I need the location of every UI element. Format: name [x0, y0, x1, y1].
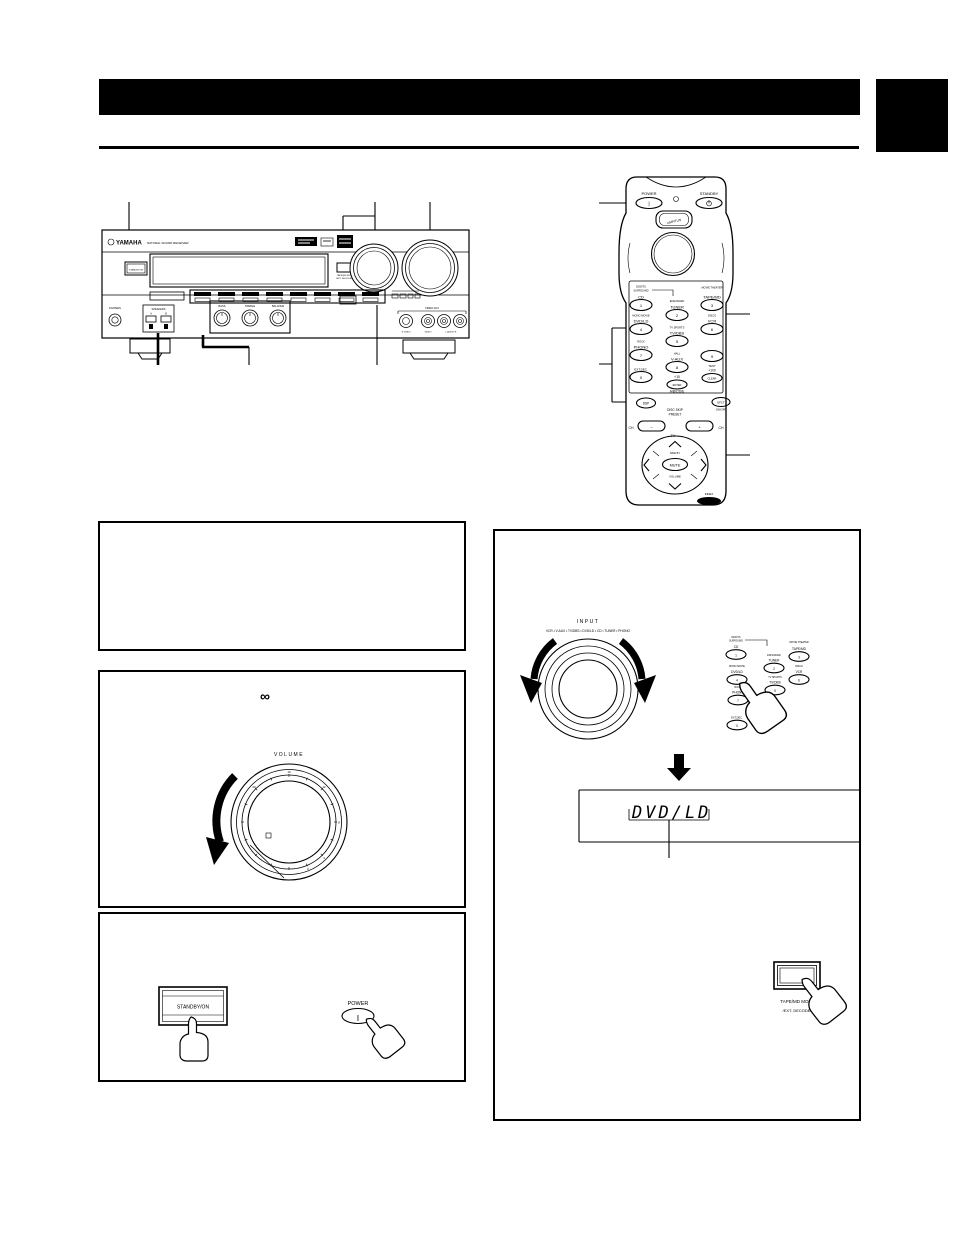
mini-key-tuner-sub1: ENHANCED [767, 654, 781, 657]
mini-key-vcr-num: 6 [798, 679, 800, 683]
front-display-graphic: DVD/LD [579, 790, 859, 858]
dial-tick-20: 20 [252, 785, 256, 789]
section-header-bar [99, 79, 860, 115]
clear-button-label: CLEAR [708, 377, 717, 381]
mini-key-tuner-num: 2 [773, 667, 775, 671]
speakers-label: SPEAKERS [152, 307, 166, 311]
power-symbol: | [648, 202, 649, 208]
video-label: VIDEO [425, 332, 432, 334]
volume-dial-label: VOLUME [274, 752, 304, 758]
mini-key-extdec-num: 0 [736, 724, 738, 728]
key-vaux-label: V-AUX [671, 357, 683, 362]
dial-tick-12: 12 [322, 785, 326, 789]
mini-key-tapemd-sub1: MOVIE THEATER [789, 641, 809, 644]
rotate-right-arrow-icon [621, 641, 656, 703]
standby-on-button-graphic: STANDBY/ON [159, 987, 227, 1061]
dial-tick-8: 8 [338, 821, 340, 825]
onoff-label: ON/OFF [716, 408, 727, 412]
standby-on-graphic-label: STANDBY/ON [177, 1005, 210, 1011]
input-step-box: INPUT VCR • V-AUX • TV/DBS • DVD/LD • CD… [493, 529, 861, 1121]
key-dvdld-label: DVD/LD [634, 319, 649, 324]
ch-left-label: CH [628, 426, 634, 430]
mini-key-vcr-sub1: DISCO [795, 665, 803, 668]
mini-key-dvdld-num: 4 [736, 679, 738, 683]
key-dvdld-sub1: MONO MOVIE [632, 314, 649, 318]
ch-right-label: CH [718, 426, 724, 430]
standby-on-button: STANDBY/ON [125, 262, 147, 275]
tape-mon-graphic-label-2: /EXT. DECODER [783, 1008, 814, 1013]
plus10-label: +10 [674, 375, 680, 379]
balance-label: BALANCE [272, 304, 284, 308]
abcde-label: A/B/C/D/E [670, 390, 685, 394]
key-extdec-label: EXT.DEC. [634, 368, 648, 372]
key-cd-sub1: DD/DTS [636, 285, 646, 289]
mini-key-tuner: ENHANCED TUNER 2 [764, 654, 784, 673]
index-button [697, 497, 721, 505]
volume-dial: 16 12 8 4 0 20 [231, 764, 347, 880]
key-tvdbs-label: TV/DBS [670, 331, 685, 336]
manual-page: YAMAHA NATURAL SOUND RECEIVER STANDBY/ON… [0, 0, 954, 1243]
remote-control-diagram: POWER | STANDBY AMP/TUN DD/DTS SURROUND … [585, 165, 760, 515]
volume-step-graphic: ∞ VOLUME [100, 672, 464, 906]
key-vcr-label: VCR [708, 319, 717, 324]
mini-key-tapemd-num: 3 [798, 656, 800, 660]
plus100-label: +100 [708, 369, 715, 373]
mini-key-phono-num: 7 [737, 699, 739, 703]
mini-key-tapemd-label: TAPE/MD [792, 647, 807, 651]
enter-button-label: ENTER [673, 383, 682, 387]
mini-remote-keypad: DD/DTS SURROUND CD 1 ENHANCED TUNER 2 MO… [726, 636, 809, 736]
input-knob-graphic: INPUT VCR • V-AUX • TV/DBS • DVD/LD • CD… [520, 619, 656, 739]
receiver-front-panel-diagram: YAMAHA NATURAL SOUND RECEIVER STANDBY/ON… [95, 195, 480, 380]
mini-key-cd: DD/DTS SURROUND CD 1 [726, 636, 746, 659]
input-knob: INPUT [350, 244, 398, 292]
mini-key-tvdbs-sub1: TV SPORTS [768, 676, 782, 679]
dial-pointer-mark [266, 833, 271, 838]
power-step-box: STANDBY/ON POWER | [98, 912, 466, 1082]
power-label: POWER [641, 191, 656, 196]
key-vcr-sub1: DISCO [708, 314, 716, 318]
volume-step-box: ∞ VOLUME [98, 670, 466, 908]
audio-lr-label: L AUDIO R [446, 331, 457, 334]
dial-tick-4: 4 [323, 856, 325, 860]
power-button-graphic: POWER | [342, 1001, 407, 1061]
standby-on-label: STANDBY/ON [129, 268, 143, 271]
key-tuner-sub1: ENHANCED [670, 299, 685, 303]
note-box-empty [98, 521, 466, 651]
key-phono-sub1: ROCK [637, 340, 645, 344]
mute-button-label: MUTE [670, 464, 681, 468]
key-cd-label: CD [638, 295, 644, 300]
s-video-label: S VIDEO [402, 332, 411, 334]
mini-key-vcr-label: VCR [796, 670, 803, 674]
tape-mon-label-1: TAPE/MD MON [337, 274, 353, 277]
bass-label: BASS [219, 304, 226, 308]
mini-key-tapemd: MOVIE THEATER TAPE/MD 3 [789, 641, 809, 661]
key-tvdbs-sub1: TV SPORTS [670, 326, 685, 330]
mini-key-dvdld: MONO MOVIE DVD/LD 4 [727, 665, 747, 684]
header-rule [99, 146, 859, 149]
efct-label: EFCT [717, 401, 725, 405]
mini-key-dvdld-sub1: MONO MOVIE [729, 665, 745, 668]
standby-label: STANDBY [700, 191, 719, 196]
brand-text: YAMAHA [116, 241, 142, 247]
test-label: TEST [708, 364, 715, 368]
key-tapemd-label: TAPE/MD [703, 295, 721, 300]
side-by-label: SIDE BY [670, 451, 681, 455]
power-graphic-label: POWER [348, 1001, 369, 1007]
pressing-hand-icon [358, 1009, 407, 1061]
mini-key-dvdld-label: DVD/LD [731, 670, 743, 674]
dsp-label: DSP [643, 402, 650, 406]
receiver-feet [130, 339, 455, 359]
tape-mon-label-2: /EXT. DECODER [336, 278, 353, 280]
index-label: INDEX [705, 492, 714, 496]
power-step-graphic: STANDBY/ON POWER | [100, 914, 464, 1080]
key-cd-sub2: SURROUND [634, 289, 649, 293]
mini-key-vcr: DISCO VCR 6 [789, 665, 809, 684]
power-graphic-symbol: | [357, 1016, 359, 1022]
mini-key-extdec: EXT.DEC. 0 [727, 716, 747, 730]
mini-key-cd-sub2: SURROUND [729, 640, 743, 643]
video-aux-label: VIDEO AUX [425, 306, 439, 310]
input-graphic-label: INPUT [577, 619, 600, 625]
key-tapemd-sub1: MOVIE THEATER [702, 286, 723, 290]
surround-pointer-line [745, 640, 767, 646]
dial-tick-16: 16 [287, 770, 291, 774]
preset-label: PRESET [669, 413, 682, 417]
page-edge-tab [876, 79, 948, 152]
infinity-symbol: ∞ [260, 688, 270, 704]
input-step-graphic: INPUT VCR • V-AUX • TV/DBS • DVD/LD • CD… [495, 531, 859, 1119]
mini-key-cd-label: CD [734, 645, 739, 649]
key-phono-label: PHONO [634, 345, 649, 350]
mini-key-tuner-label: TUNER [769, 659, 781, 663]
disc-skip-label: DISC SKIP [667, 408, 683, 412]
rotate-left-arrow-icon [520, 641, 555, 703]
key-tuner-label: TUNER [670, 305, 684, 310]
input-sources-label: VCR • V-AUX • TV/DBS • DVD/LD • CD • TUN… [546, 629, 630, 633]
down-arrow-icon [667, 754, 691, 781]
treble-label: TREBLE [245, 304, 255, 308]
volume-knob: VOLUME [402, 240, 458, 296]
mini-key-extdec-label: EXT.DEC. [731, 716, 743, 720]
mini-key-tvdbs-label: TV/DBS [769, 681, 781, 685]
tape-mon-button-graphic: TAPE/MD MON /EXT. DECODER [774, 962, 849, 1027]
remote-volume-label: VOLUME [669, 475, 681, 479]
phones-label: PHONES [109, 306, 121, 310]
mini-key-cd-num: 1 [735, 654, 737, 658]
brand-tagline: NATURAL SOUND RECEIVER [147, 241, 189, 245]
tape-mon-graphic-label-1: TAPE/MD MON [780, 999, 811, 1004]
key-vaux-sub1: HALL [674, 352, 681, 356]
mini-key-tvdbs-num: 5 [774, 689, 776, 693]
